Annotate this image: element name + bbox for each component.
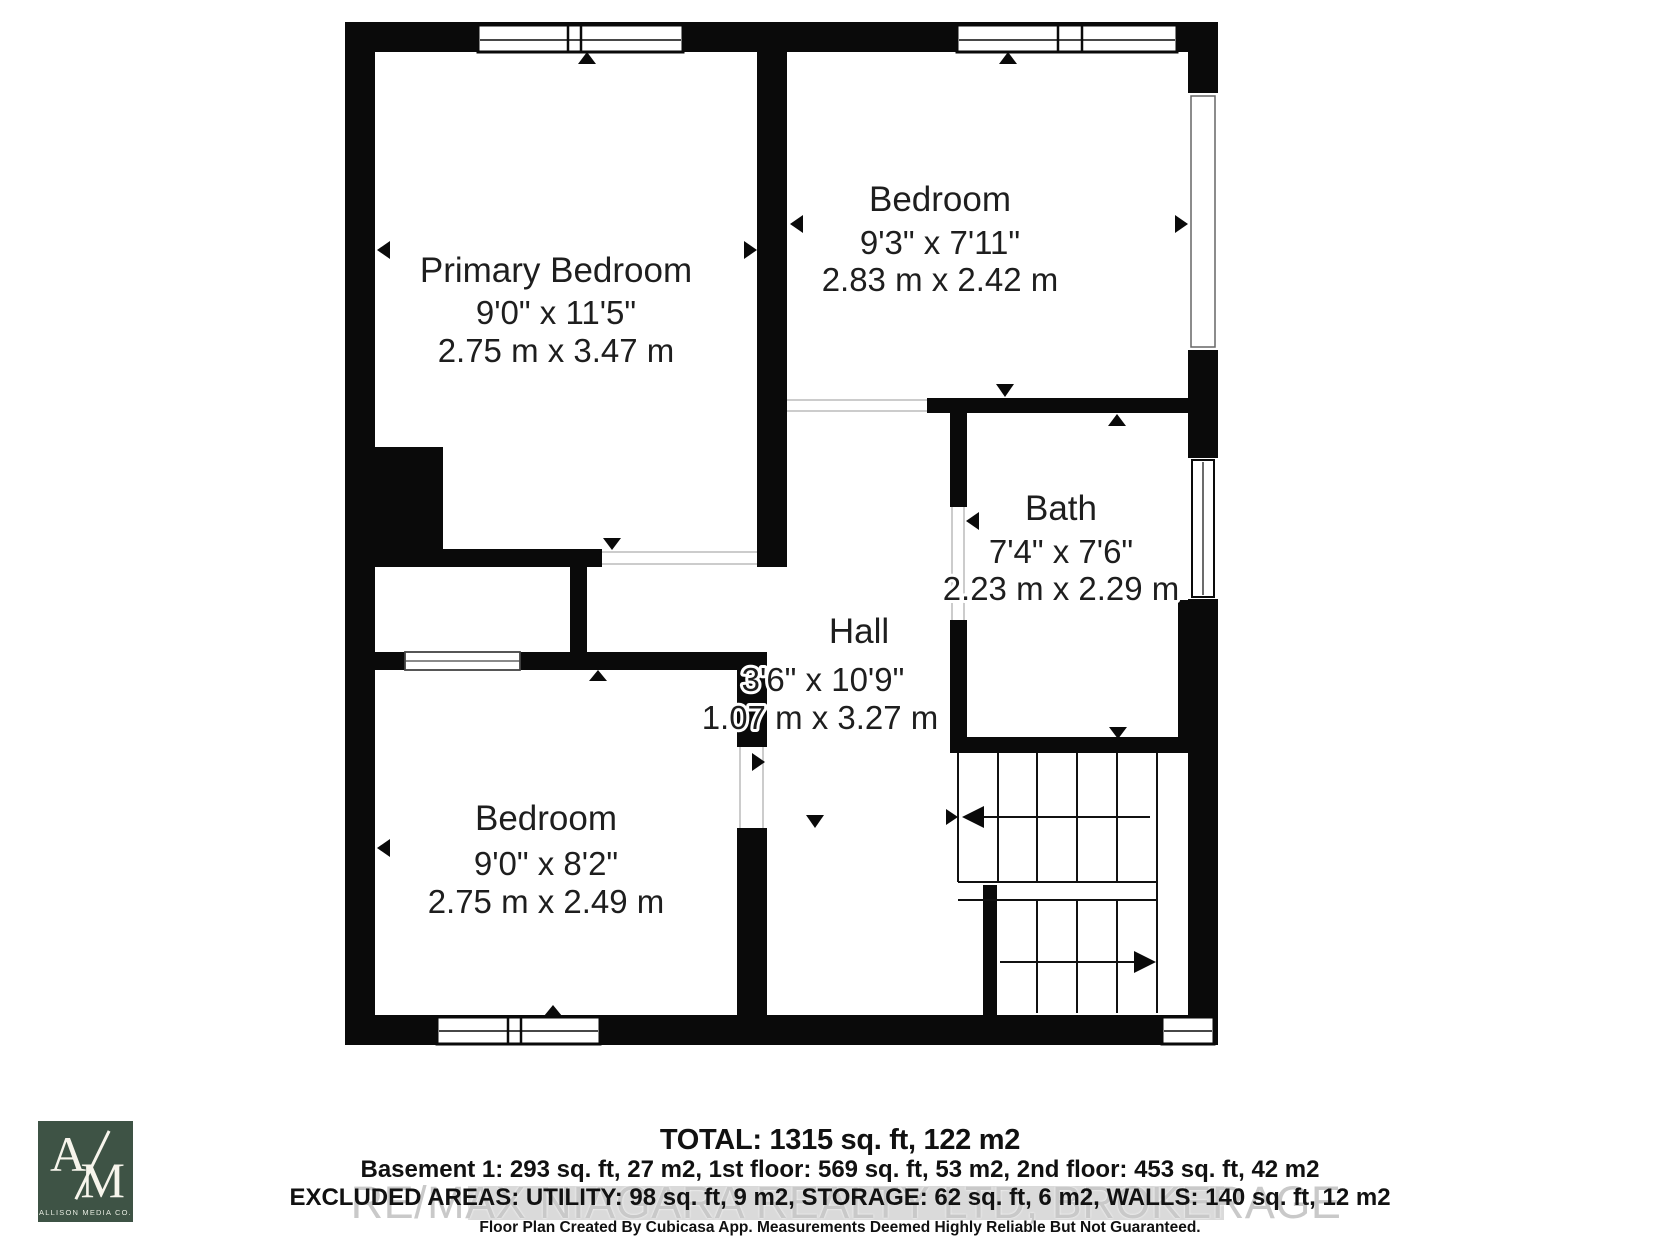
logo-company-name: ALLISON MEDIA CO.: [38, 1208, 133, 1217]
wall-bath-bottom: [950, 737, 1193, 753]
room-label-bath-imperial: 7'4" x 7'6": [989, 533, 1133, 570]
room-label-bedroomtr-metric: 2.83 m x 2.42 m: [822, 261, 1059, 298]
logo-monogram-m: M: [81, 1151, 125, 1209]
floor-plan-page: Primary Bedroom 9'0" x 11'5" 2.75 m x 3.…: [0, 0, 1680, 1260]
wall-niche-right: [1188, 93, 1218, 350]
room-label-primary-imperial: 9'0" x 11'5": [476, 294, 636, 331]
door-marker-up: [578, 52, 596, 64]
door-marker-right: [1175, 215, 1188, 233]
wall-closet-right: [570, 567, 587, 652]
door-marker-right: [744, 241, 757, 259]
closet-sliding-door: [405, 652, 520, 670]
window-stairwell-bottom: [1162, 1017, 1214, 1044]
floor-areas-line: Basement 1: 293 sq. ft, 27 m2, 1st floor…: [0, 1156, 1680, 1184]
door-marker-left: [790, 215, 803, 233]
room-label-hall-name: Hall: [829, 612, 889, 651]
floor-plan-drawing: Primary Bedroom 9'0" x 11'5" 2.75 m x 3.…: [0, 0, 1680, 1260]
window-bath-right: [1188, 458, 1218, 599]
allison-media-logo: A M ALLISON MEDIA CO.: [38, 1121, 133, 1222]
wall-outer-left: [345, 22, 375, 1045]
wall-bedroom-bath-top: [927, 398, 1218, 413]
room-label-bedroombl-metric: 2.75 m x 2.49 m: [428, 883, 665, 920]
stairs-up-arrow-tick: [946, 809, 958, 825]
door-marker-left: [377, 241, 390, 259]
room-label-bath-metric: 2.23 m x 2.29 m: [943, 570, 1180, 607]
room-label-primary-metric: 2.75 m x 3.47 m: [438, 332, 675, 369]
door-marker-up: [589, 670, 607, 681]
wall-hall-bath-upper: [950, 413, 967, 507]
door-marker-up: [544, 1005, 562, 1016]
room-label-bath-name: Bath: [1025, 489, 1097, 528]
room-label-hall-metric: 1.07 m x 3.27 m: [702, 699, 939, 736]
wall-bedrooms-divider: [757, 52, 787, 567]
door-marker-up: [999, 52, 1017, 64]
stairs-down-arrow: [1134, 951, 1156, 973]
wall-hall-bath-lower: [950, 620, 967, 753]
stairs-up-arrow: [962, 806, 984, 828]
window-primary-top: [478, 25, 683, 52]
wall-primary-bottom: [375, 549, 602, 567]
wall-stairs-left: [983, 885, 997, 1015]
total-area-line: TOTAL: 1315 sq. ft, 122 m2: [0, 1124, 1680, 1157]
door-marker-left: [377, 839, 390, 857]
room-label-bedroomtr-imperial: 9'3" x 7'11": [860, 224, 1020, 261]
room-label-bedroombl-imperial: 9'0" x 8'2": [474, 845, 618, 882]
room-label-hall-imperial: 3'6" x 10'9": [742, 661, 905, 698]
door-marker-left: [966, 512, 979, 530]
room-label-bedroomtr-name: Bedroom: [869, 180, 1011, 219]
door-marker-down: [806, 815, 824, 828]
disclaimer-line: Floor Plan Created By Cubicasa App. Meas…: [0, 1219, 1680, 1237]
excluded-areas-line: EXCLUDED AREAS: UTILITY: 98 sq. ft, 9 m2…: [0, 1184, 1680, 1212]
window-bedroom-top: [957, 25, 1177, 52]
chimney-block: [375, 447, 443, 549]
room-label-bedroombl-name: Bedroom: [475, 799, 617, 838]
wall-bedroom2-top: [520, 652, 767, 670]
wall-bath-window-niche: [1178, 600, 1193, 737]
door-marker-down: [603, 538, 621, 550]
wall-bedroom2-right-lower: [737, 828, 767, 1015]
door-marker-up: [1108, 414, 1126, 426]
door-marker-down: [996, 384, 1014, 397]
window-bedroom2-bottom: [437, 1017, 600, 1044]
wall-closet-bottom-left: [375, 652, 405, 670]
stair-arrowheads: [946, 806, 1156, 973]
room-label-primary-name: Primary Bedroom: [420, 251, 692, 290]
